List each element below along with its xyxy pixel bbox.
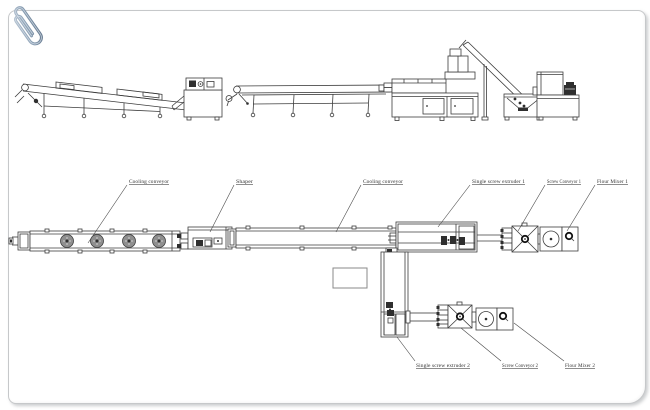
label-text: Cooling conveyor [363,179,403,185]
label-text: Screw Conveyor 1 [547,179,581,185]
label-text: Single screw extruder 1 [472,179,525,185]
label-screw-conveyor-2: Screw Conveyor 2 [461,328,538,369]
plan-shaper [177,227,232,249]
plan-screw-conveyor-1 [477,223,538,252]
label-shaper: Shaper [210,179,253,232]
label-text: Single screw extruder 2 [416,363,470,369]
plan-flour-mixer-1 [538,227,578,251]
label-cooling-conveyor-2: Cooling conveyor [336,179,403,232]
elev-flour-mixer-1 [533,72,579,120]
label-single-screw-extruder-1: Single screw extruder 1 [438,179,525,227]
elev-shaper [172,78,232,120]
label-single-screw-extruder-2: Single screw extruder 2 [397,337,470,369]
plan-cooling-conveyor-2 [228,226,396,250]
plan-single-screw-extruder-1 [388,222,477,252]
label-text: Shaper [236,179,253,185]
attachment-page: Cooling conveyor Shaper Cooling conveyor… [0,0,650,410]
plan-screw-conveyor-2 [406,302,472,328]
label-text: Screw Conveyor 2 [502,363,538,369]
cooling-fan [153,235,166,248]
elevation-view [15,40,579,121]
cooling-fan [61,235,74,248]
elev-single-screw-extruder-1 [379,49,478,121]
paperclip-icon [10,6,44,46]
label-text: Flour Mixer 1 [597,179,628,185]
plan-view [9,222,578,337]
plan-control-box [333,268,367,288]
plan-cooling-conveyor-1 [9,229,180,253]
plan-single-screw-extruder-2 [381,248,408,337]
plan-flour-mixer-2 [472,308,513,330]
label-flour-mixer-1: Flour Mixer 1 [567,179,628,231]
label-text: Cooling conveyor [129,179,169,185]
cooling-fan [123,235,136,248]
label-text: Flour Mixer 2 [565,363,595,369]
elev-cooling-conveyor-1 [15,82,193,118]
elev-cooling-conveyor-2 [228,85,392,117]
line-diagram: Cooling conveyor Shaper Cooling conveyor… [0,0,650,410]
